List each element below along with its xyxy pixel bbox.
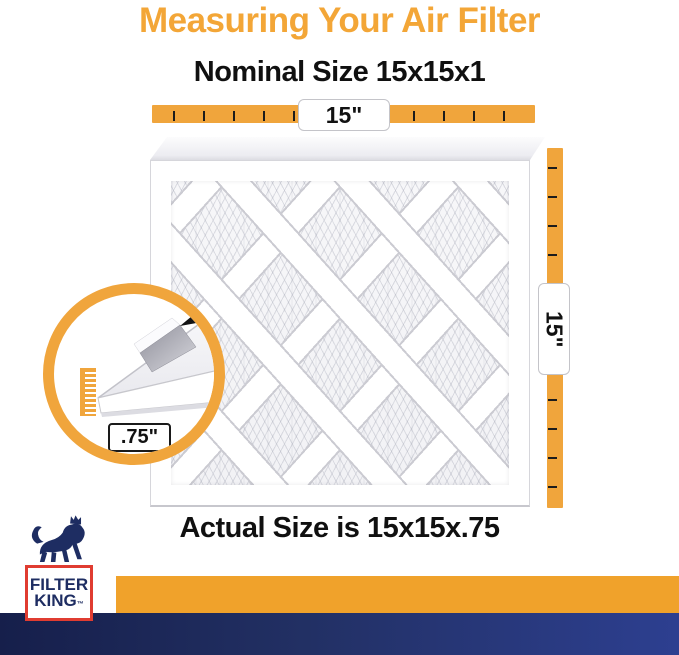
mini-ruler-icon [80,368,96,416]
filter-king-logo: FILTER KING™ [25,565,93,621]
filter-top-face [150,137,545,160]
logo-text-line2: KING™ [34,593,84,609]
width-measurement-label: 15" [298,99,390,131]
lion-crown-logo-icon [28,514,92,566]
bottom-orange-bar [116,576,679,613]
height-measurement-label: 15" [538,283,570,375]
nominal-size-heading: Nominal Size 15x15x1 [0,56,679,89]
trademark-symbol: ™ [77,601,84,608]
bottom-navy-bar [0,613,679,655]
filter-pleated-media [171,181,509,485]
vertical-ruler-icon: 15" [547,148,563,508]
page-title: Measuring Your Air Filter [0,1,679,41]
depth-measurement-label: .75" [108,423,171,452]
actual-size-heading: Actual Size is 15x15x.75 [0,512,679,545]
horizontal-ruler-icon: 15" [152,105,535,123]
magnifier-circle-icon: .75" [43,283,225,465]
product-infographic: Measuring Your Air Filter Nominal Size 1… [0,0,679,655]
